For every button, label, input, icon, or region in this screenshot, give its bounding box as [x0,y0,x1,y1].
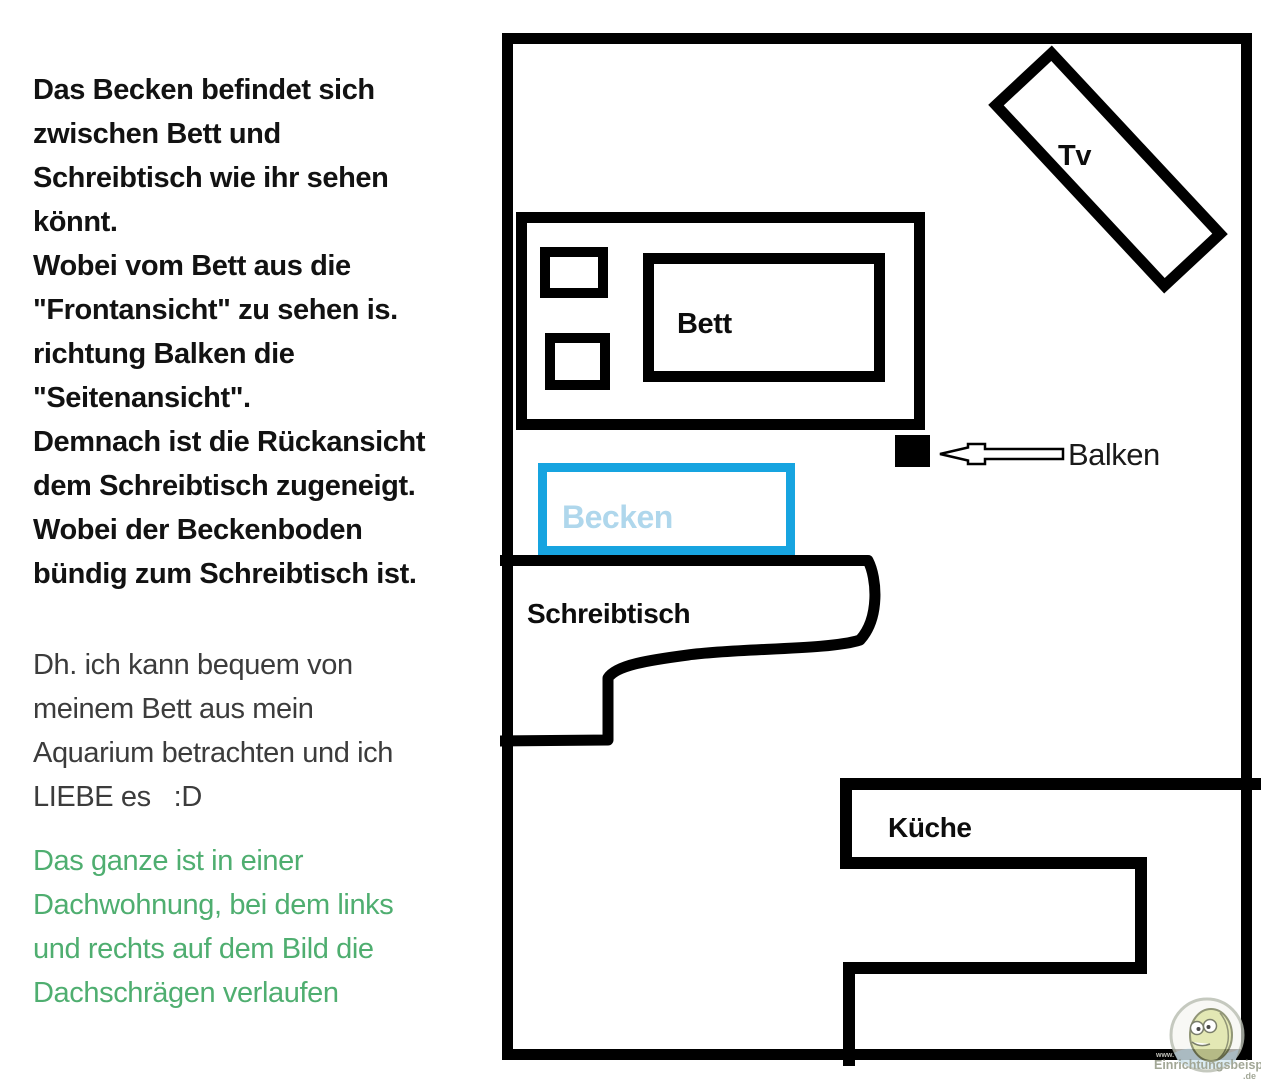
tank-label: Becken [562,499,673,536]
pillow-square-2 [545,333,610,390]
kitchen-label: Küche [888,812,972,844]
desk-label: Schreibtisch [527,598,690,630]
site-watermark: www. Einrichtungsbeispiele .de [1150,995,1261,1080]
floor-plan-page: Das Becken befindet sich zwischen Bett u… [0,0,1261,1080]
paragraph-tank-placement: Das Becken befindet sich zwischen Bett u… [33,68,503,596]
beam-label: Balken [1068,437,1160,473]
desk-outline [500,548,890,758]
beam-marker-square [895,435,930,467]
bed-label: Bett [677,308,732,341]
paragraph-attic-note: Das ganze ist in einer Dachwohnung, bei … [33,839,503,1015]
pillow-square-1 [540,247,608,298]
tv-label: Tv [1058,140,1091,173]
paragraph-view-from-bed: Dh. ich kann bequem von meinem Bett aus … [33,643,503,819]
description-text-column: Das Becken befindet sich zwischen Bett u… [33,68,503,1015]
watermark-site-text: Einrichtungsbeispiele [1154,1058,1261,1072]
left-arrow-icon [938,441,1066,467]
watermark-tld-text: .de [1243,1071,1256,1080]
